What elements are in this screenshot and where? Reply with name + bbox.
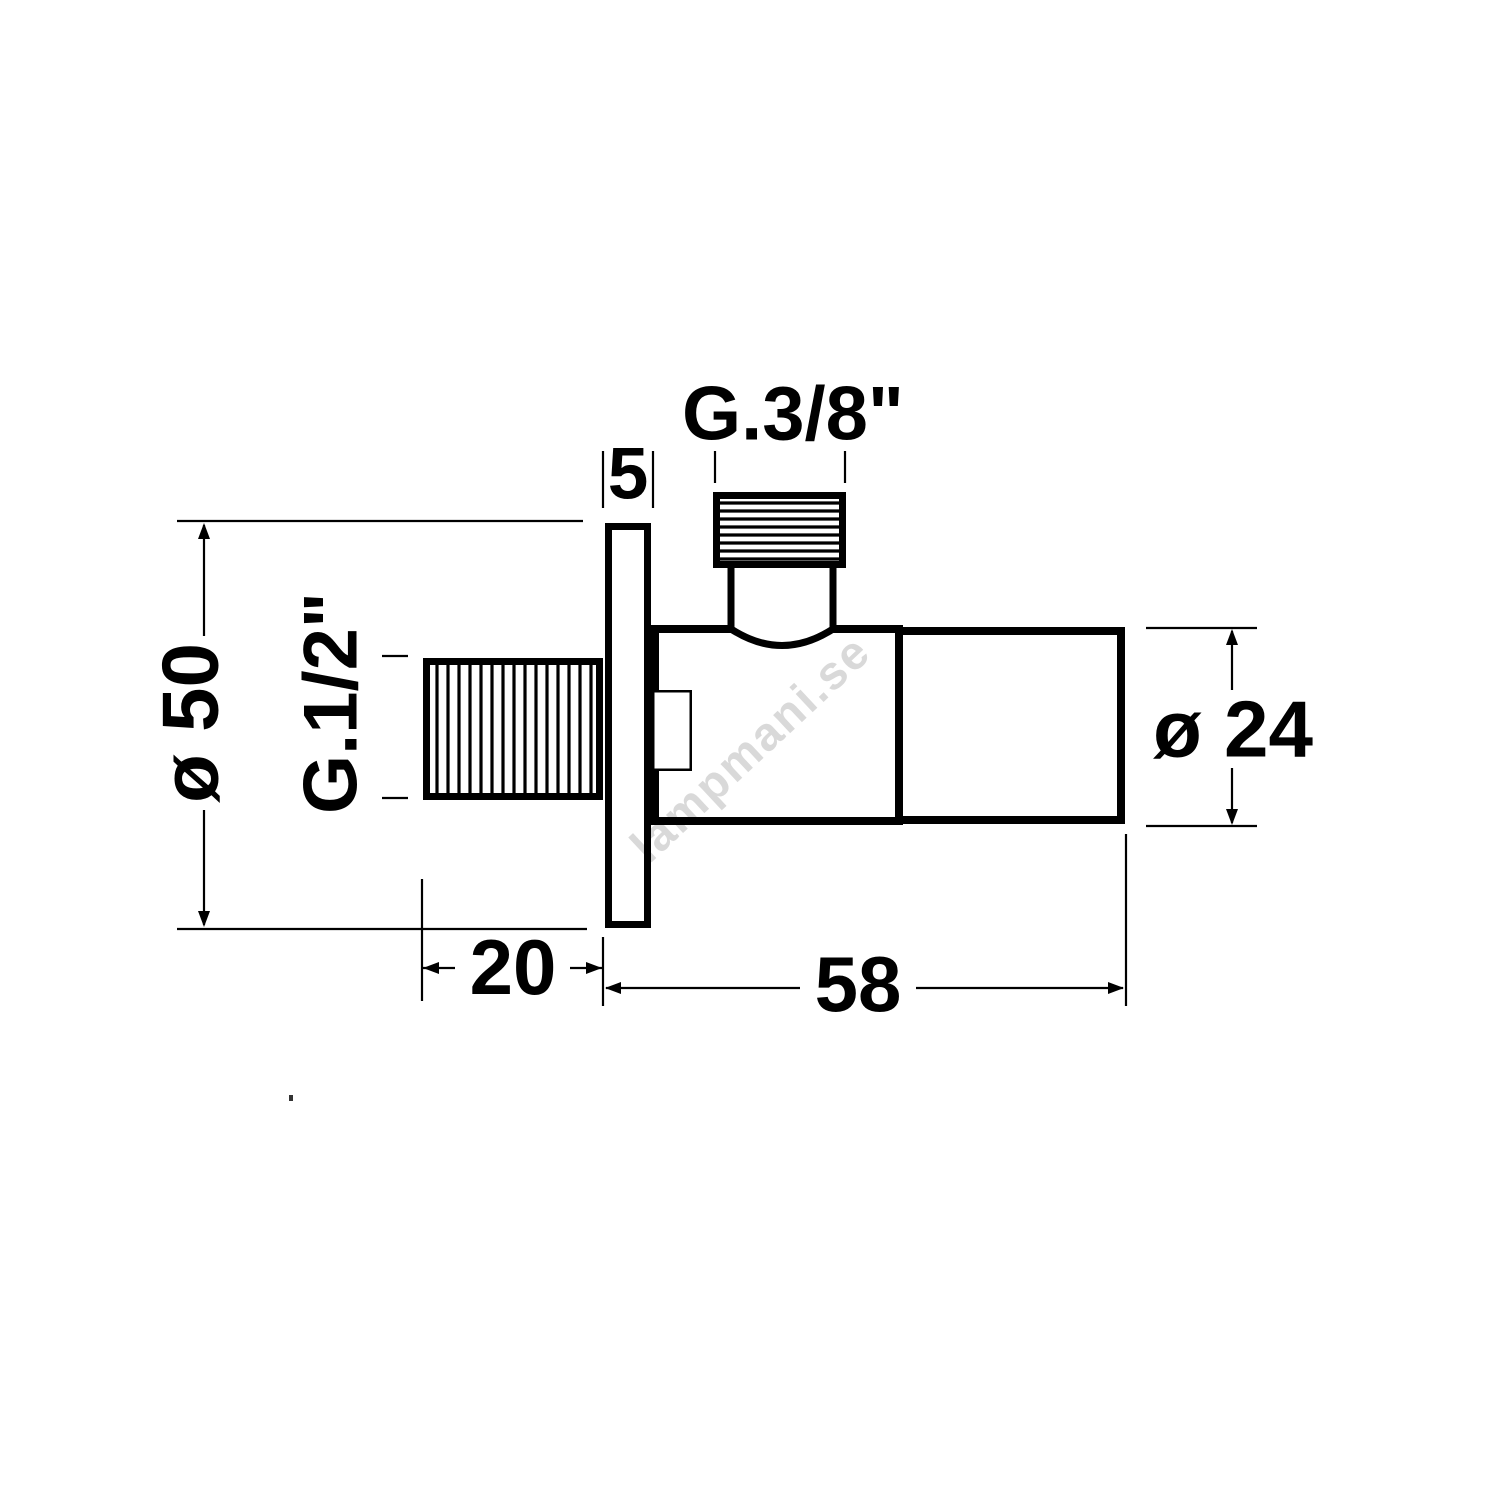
side-thread-label: G.1/2" <box>289 592 374 814</box>
stem-square <box>653 691 691 770</box>
angle-valve-technical-drawing: lampmani.se <box>0 0 1500 1500</box>
flange-thickness-label: 5 <box>608 434 649 515</box>
body-diameter-label: ø 24 <box>1153 685 1314 774</box>
thread-length-label: 20 <box>470 923 557 1011</box>
flange-diameter-label: ø 50 <box>146 643 235 803</box>
dimension-flange-thickness: 5 <box>603 434 653 515</box>
top-thread-label: G.3/8" <box>682 372 904 457</box>
body-length-label: 58 <box>815 940 902 1028</box>
artifact-dot <box>289 1095 293 1101</box>
side-thread-hatching <box>437 663 591 795</box>
